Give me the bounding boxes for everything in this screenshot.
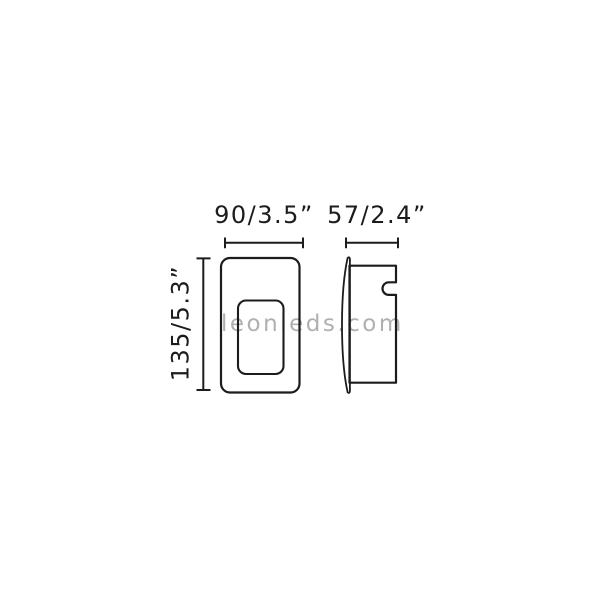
height-dimension-line [197,258,211,390]
front-width-dimension-line [225,238,303,249]
technical-drawing [0,0,600,600]
side-depth-dimension-line [346,238,398,249]
front-view-faceplate-outline [221,258,300,393]
front-view-aperture-outline [238,301,284,375]
front-width-dimension-label: 90/3.5” [214,201,314,230]
height-dimension-label: 135/5.3” [167,265,196,382]
side-depth-dimension-label: 57/2.4” [327,201,427,230]
side-view-housing-outline [350,266,397,383]
diagram-canvas: leonleds.com 90/3.5” 57/2.4” 135/5.3” [0,0,600,600]
